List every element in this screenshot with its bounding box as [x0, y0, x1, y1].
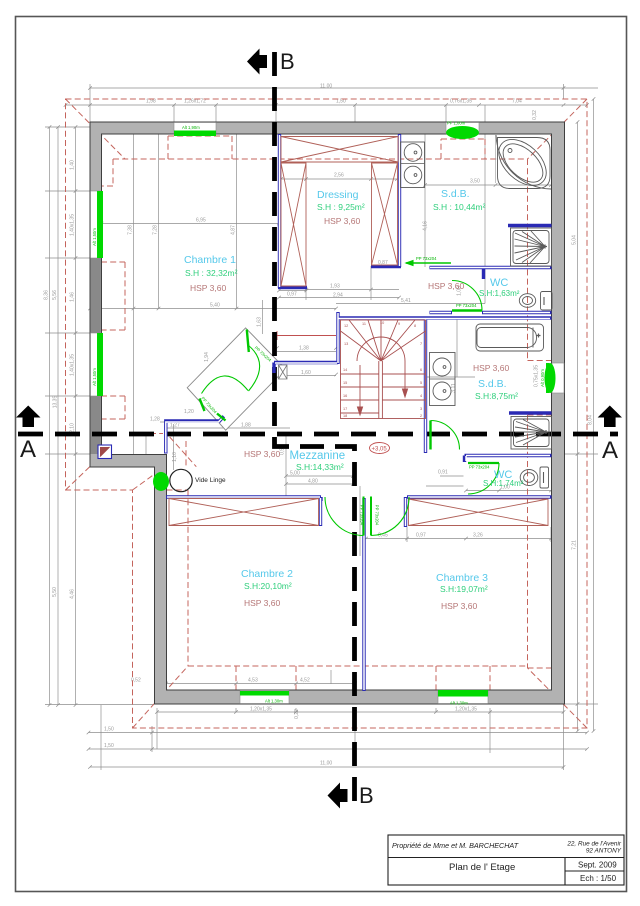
- svg-text:S.d.B.: S.d.B.: [441, 188, 470, 200]
- svg-text:Vide Linge: Vide Linge: [195, 477, 226, 484]
- svg-text:1,94: 1,94: [204, 352, 210, 362]
- svg-text:4,87: 4,87: [231, 225, 237, 235]
- svg-text:16: 16: [343, 394, 347, 398]
- svg-text:9: 9: [398, 322, 400, 326]
- svg-text:S.d.B.: S.d.B.: [478, 378, 507, 390]
- svg-text:HSP 3,60: HSP 3,60: [244, 598, 281, 608]
- svg-text:2,56: 2,56: [334, 173, 344, 179]
- svg-text:6,95: 6,95: [196, 218, 206, 224]
- svg-text:8: 8: [414, 324, 416, 328]
- svg-text:Propriété de Mme et M. BARCHEC: Propriété de Mme et M. BARCHECHAT: [392, 841, 519, 850]
- svg-text:HSP 3,60: HSP 3,60: [473, 363, 510, 373]
- svg-text:Plan de l' Etage: Plan de l' Etage: [449, 862, 515, 873]
- svg-text:1,40x1,35: 1,40x1,35: [70, 354, 76, 376]
- svg-text:7,38: 7,38: [128, 225, 134, 235]
- svg-text:8,04: 8,04: [588, 415, 594, 425]
- svg-text:HSP 3,60: HSP 3,60: [324, 216, 361, 226]
- svg-text:S.H:20,10m²: S.H:20,10m²: [244, 581, 292, 591]
- svg-text:5,40: 5,40: [210, 303, 220, 309]
- svg-text:4,46: 4,46: [70, 589, 76, 599]
- svg-text:4,80: 4,80: [308, 479, 318, 485]
- svg-text:1,40: 1,40: [70, 160, 76, 170]
- svg-text:HSP 3,60: HSP 3,60: [190, 283, 227, 293]
- svg-text:Chambre 1: Chambre 1: [184, 254, 236, 266]
- svg-text:14: 14: [343, 368, 347, 372]
- svg-text:4,16: 4,16: [423, 221, 429, 231]
- svg-text:Alt 1,50m: Alt 1,50m: [92, 368, 97, 386]
- svg-text:1,20x1,35: 1,20x1,35: [455, 707, 477, 713]
- svg-text:1,50: 1,50: [104, 727, 114, 733]
- svg-text:Sept. 2009: Sept. 2009: [578, 861, 617, 870]
- svg-text:Alt 1,30m: Alt 1,30m: [265, 699, 283, 704]
- svg-text:0,75x1,35: 0,75x1,35: [534, 365, 540, 387]
- svg-text:0,97: 0,97: [416, 533, 426, 539]
- svg-text:11,00: 11,00: [320, 84, 332, 90]
- svg-text:8,36: 8,36: [44, 290, 50, 300]
- svg-text:PP 73x204: PP 73x204: [360, 505, 365, 526]
- svg-text:5,56: 5,56: [52, 290, 58, 300]
- svg-text:1,40x1,35: 1,40x1,35: [70, 214, 76, 236]
- svg-text:11: 11: [362, 322, 366, 326]
- svg-text:13,35: 13,35: [53, 396, 59, 409]
- svg-text:0,97: 0,97: [287, 292, 297, 298]
- svg-text:+3,05: +3,05: [372, 447, 388, 453]
- svg-text:S.H:19,07m²: S.H:19,07m²: [440, 584, 488, 594]
- svg-text:3,26: 3,26: [473, 533, 483, 539]
- svg-text:Alt 1,90m: Alt 1,90m: [182, 125, 200, 130]
- svg-text:S.H:1,74m²: S.H:1,74m²: [483, 479, 524, 488]
- svg-text:HSP 3,60: HSP 3,60: [428, 281, 465, 291]
- svg-text:1,27: 1,27: [170, 423, 180, 429]
- svg-text:1,60: 1,60: [301, 370, 311, 376]
- svg-text:S.H : 9,25m²: S.H : 9,25m²: [317, 202, 365, 212]
- svg-text:S.H:8,75m²: S.H:8,75m²: [475, 391, 518, 401]
- svg-text:13: 13: [344, 342, 348, 346]
- svg-text:5,50: 5,50: [52, 587, 58, 597]
- svg-text:B: B: [280, 49, 295, 74]
- svg-text:3,50: 3,50: [470, 179, 480, 185]
- svg-text:PP 73x204: PP 73x204: [375, 505, 380, 526]
- svg-text:Mezzanine: Mezzanine: [290, 450, 346, 462]
- svg-text:1,38: 1,38: [299, 346, 309, 352]
- svg-text:Alt 1,50m: Alt 1,50m: [92, 228, 97, 246]
- svg-text:17: 17: [343, 407, 347, 411]
- svg-text:12: 12: [344, 324, 348, 328]
- svg-text:1,28: 1,28: [150, 417, 160, 423]
- svg-text:PP 73x204: PP 73x204: [456, 303, 477, 308]
- svg-text:4: 4: [420, 394, 422, 398]
- svg-text:Chambre 2: Chambre 2: [241, 568, 293, 580]
- svg-text:Alt 1,30m: Alt 1,30m: [450, 701, 468, 706]
- svg-text:5,41: 5,41: [401, 298, 411, 304]
- svg-text:0,91: 0,91: [438, 470, 448, 476]
- svg-text:7,28: 7,28: [153, 225, 159, 235]
- svg-text:A: A: [20, 436, 36, 463]
- svg-text:S.H : 32,32m²: S.H : 32,32m²: [185, 268, 238, 278]
- svg-text:S.H:1,63m²: S.H:1,63m²: [479, 289, 520, 298]
- svg-text:18: 18: [343, 414, 347, 418]
- svg-text:S.H:14,33m²: S.H:14,33m²: [296, 462, 344, 472]
- svg-text:B: B: [359, 783, 374, 808]
- svg-text:1,46: 1,46: [70, 292, 76, 302]
- svg-text:22, Rue de l'Avenir: 22, Rue de l'Avenir: [566, 841, 622, 848]
- svg-text:15: 15: [343, 381, 347, 385]
- svg-text:7,21: 7,21: [572, 540, 578, 550]
- svg-text:Dressing: Dressing: [317, 189, 359, 201]
- svg-text:Chambre 3: Chambre 3: [436, 572, 488, 584]
- svg-text:HSP 3,60: HSP 3,60: [441, 601, 478, 611]
- svg-text:A: A: [602, 437, 618, 464]
- svg-text:92 ANTONY: 92 ANTONY: [586, 848, 622, 855]
- svg-text:3,11: 3,11: [451, 383, 457, 393]
- svg-text:0,22: 0,22: [294, 709, 300, 719]
- svg-text:Alt 0,90m: Alt 0,90m: [540, 369, 545, 387]
- svg-text:S.H : 10,44m²: S.H : 10,44m²: [433, 202, 486, 212]
- svg-text:1,20: 1,20: [184, 409, 194, 415]
- svg-text:PP 73x204: PP 73x204: [416, 256, 437, 261]
- svg-text:1,63: 1,63: [257, 317, 263, 327]
- svg-text:PP 73x204: PP 73x204: [469, 465, 490, 470]
- svg-text:6: 6: [420, 368, 422, 372]
- svg-text:Ech : 1/50: Ech : 1/50: [580, 874, 617, 883]
- svg-text:3: 3: [420, 407, 422, 411]
- svg-text:PF 1,00m: PF 1,00m: [447, 121, 466, 126]
- svg-text:7: 7: [420, 342, 422, 346]
- svg-text:1,10: 1,10: [172, 452, 178, 462]
- svg-text:0,32: 0,32: [532, 110, 538, 120]
- svg-text:4,52: 4,52: [300, 678, 310, 684]
- svg-text:WC: WC: [490, 277, 508, 289]
- svg-text:5,04: 5,04: [572, 235, 578, 245]
- svg-text:1,93: 1,93: [330, 284, 340, 290]
- svg-text:10: 10: [380, 321, 384, 325]
- svg-text:1,88: 1,88: [241, 423, 251, 429]
- svg-text:2,10: 2,10: [70, 423, 76, 433]
- svg-text:HSP 3,60: HSP 3,60: [244, 449, 281, 459]
- svg-text:4,53: 4,53: [248, 678, 258, 684]
- svg-text:2: 2: [420, 414, 422, 418]
- svg-text:2,94: 2,94: [333, 293, 343, 299]
- svg-text:1,50: 1,50: [104, 743, 114, 749]
- svg-text:5: 5: [420, 381, 422, 385]
- svg-text:11,00: 11,00: [320, 761, 332, 767]
- svg-text:1,20x1,35: 1,20x1,35: [250, 707, 272, 713]
